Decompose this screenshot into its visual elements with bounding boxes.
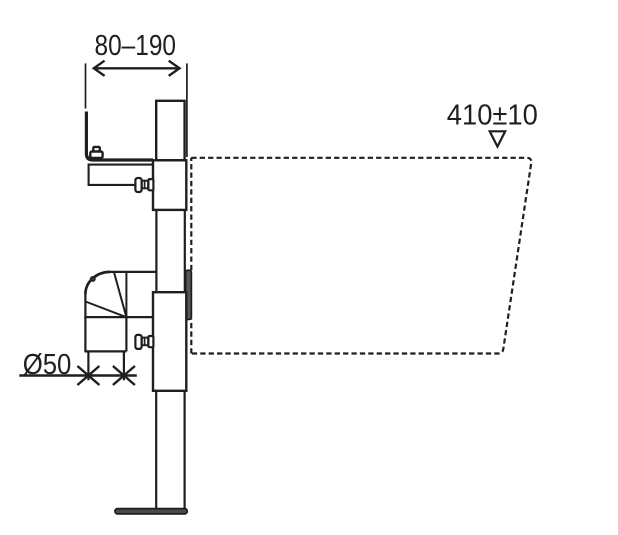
svg-text:80–190: 80–190 xyxy=(95,30,177,62)
svg-text:410±10: 410±10 xyxy=(447,100,538,132)
